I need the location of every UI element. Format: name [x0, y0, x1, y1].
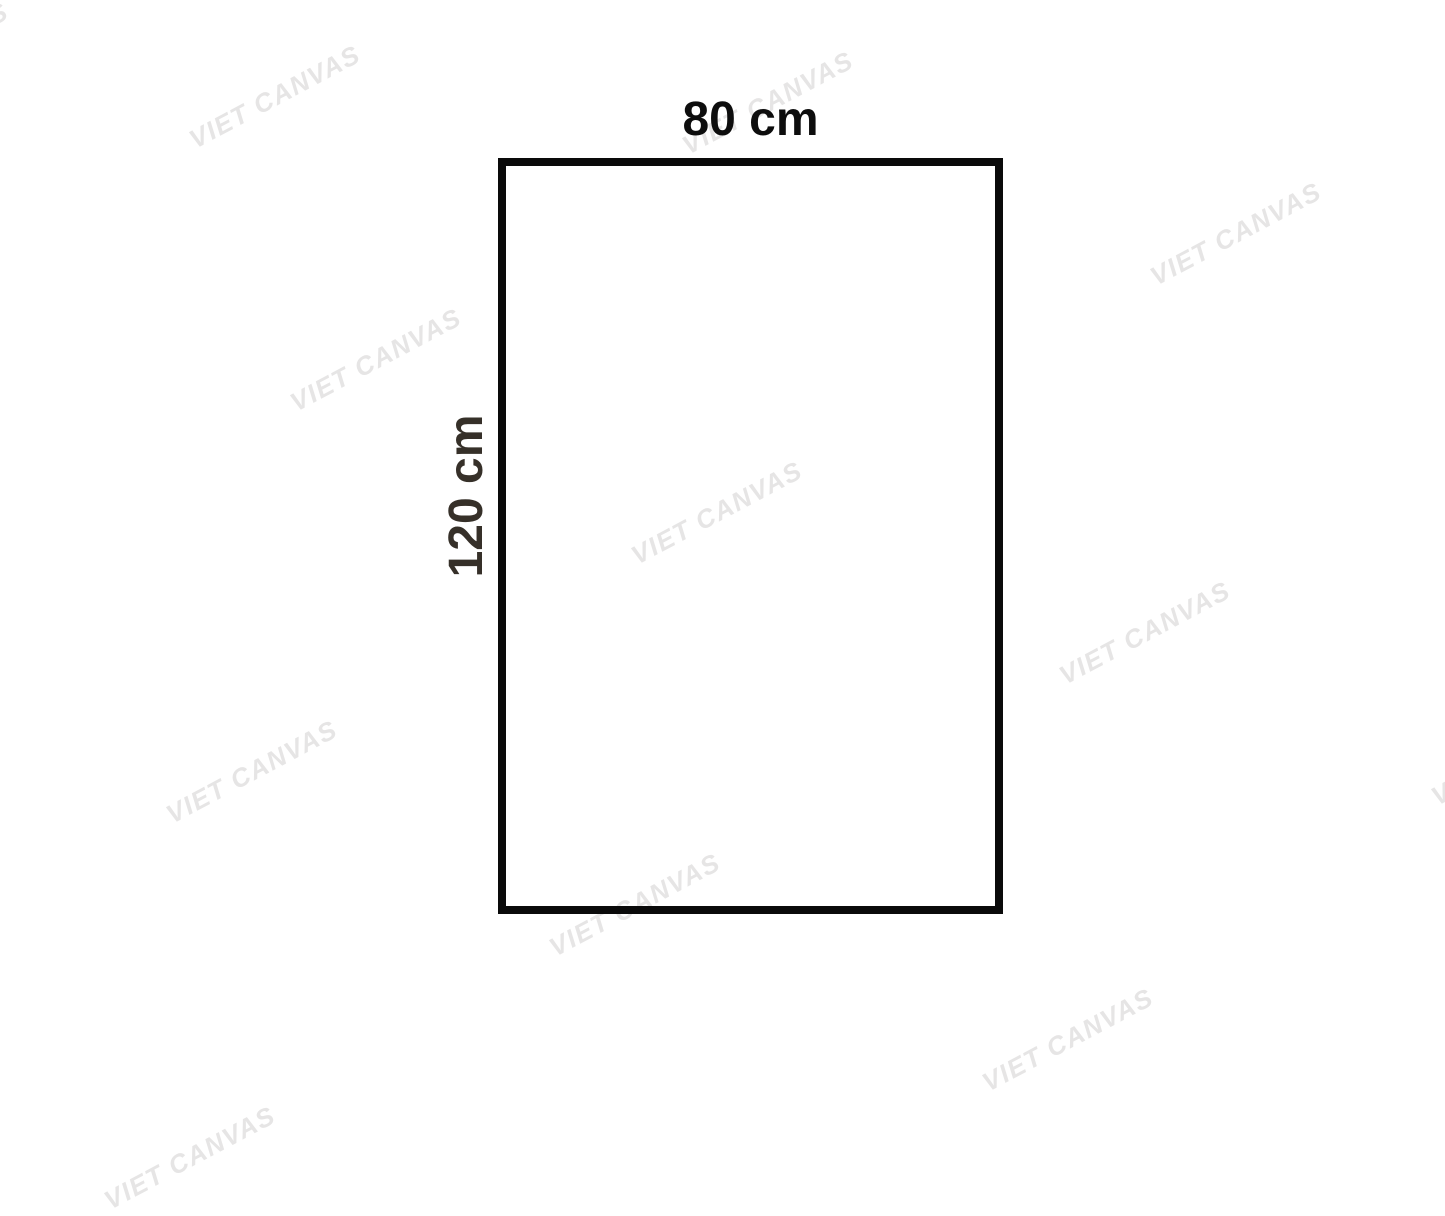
watermark-text: VIET CANVAS	[977, 982, 1159, 1098]
watermark-text: VIET CANVAS	[1054, 575, 1236, 691]
width-dimension-label: 80 cm	[498, 96, 1003, 144]
watermark-text: VIET CANVAS	[99, 1100, 281, 1216]
canvas-rectangle	[498, 158, 1003, 914]
watermark-text: VIET CANVAS	[0, 0, 14, 112]
watermark-text: VIET CANVAS	[1426, 696, 1445, 812]
watermark-text: VIET CANVAS	[285, 302, 467, 418]
watermark-text: VIET CANVAS	[1145, 176, 1327, 292]
watermark-text: VIET CANVAS	[184, 39, 366, 155]
watermark-text: VIET CANVAS	[161, 714, 343, 830]
height-dimension-label: 120 cm	[443, 415, 491, 578]
